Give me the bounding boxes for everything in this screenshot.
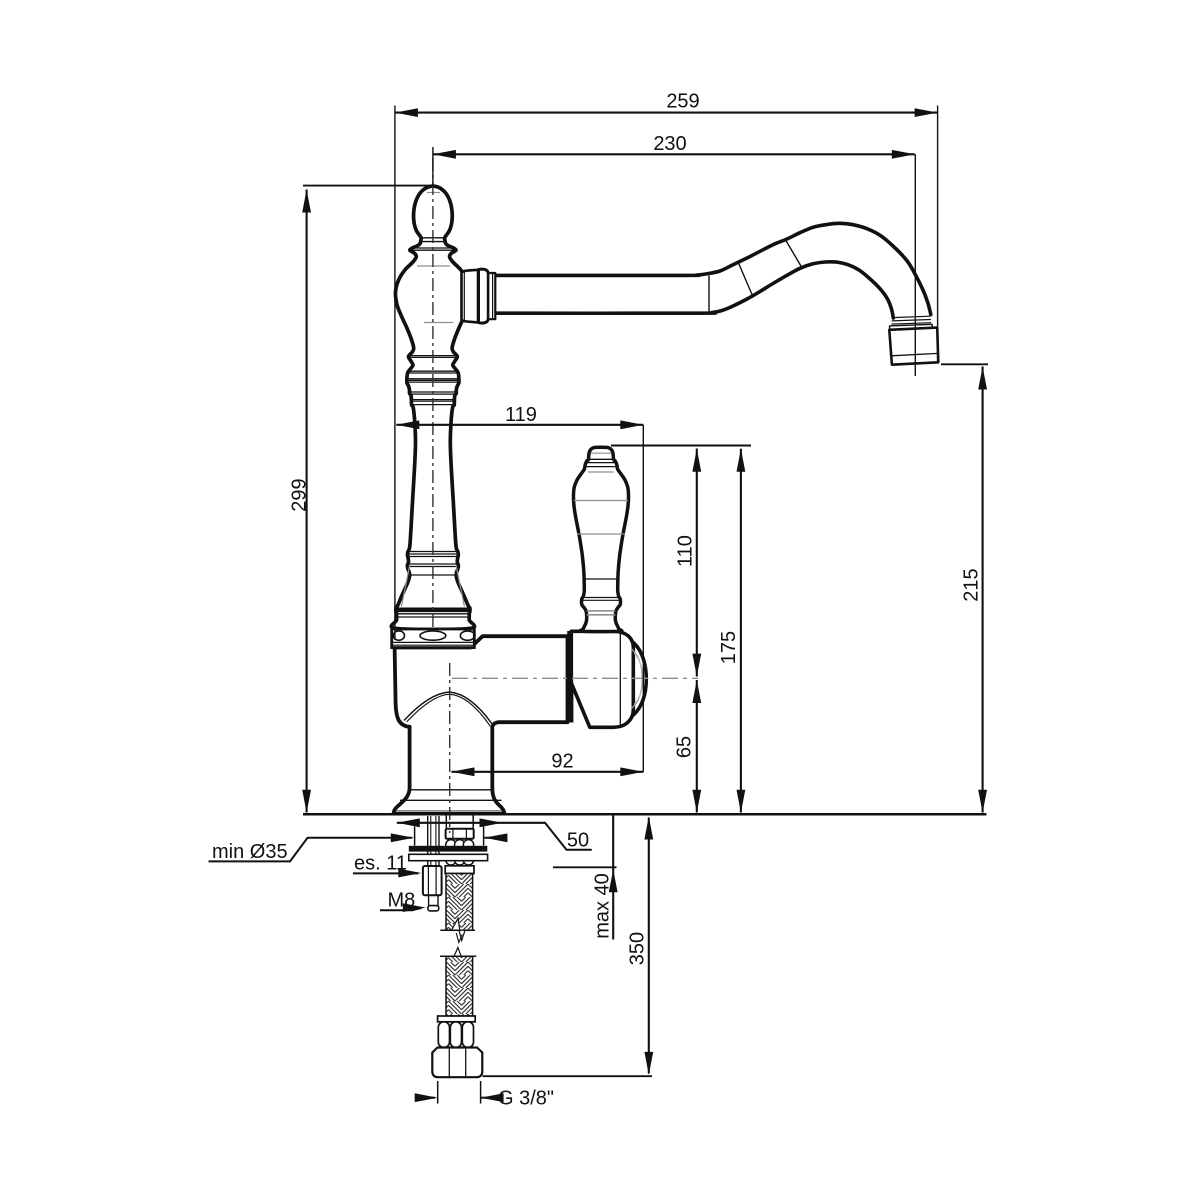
svg-text:215: 215 [961, 568, 983, 601]
svg-text:110: 110 [675, 535, 697, 567]
svg-text:G 3/8": G 3/8" [498, 1088, 554, 1110]
svg-text:259: 259 [666, 91, 699, 113]
svg-text:299: 299 [289, 478, 311, 511]
svg-text:230: 230 [653, 133, 686, 155]
svg-text:175: 175 [718, 631, 740, 664]
svg-text:50: 50 [567, 830, 589, 852]
svg-text:min Ø35: min Ø35 [212, 841, 288, 863]
svg-text:es. 11: es. 11 [354, 853, 407, 875]
svg-text:M8: M8 [388, 890, 416, 912]
svg-text:65: 65 [674, 736, 696, 758]
svg-text:350: 350 [627, 932, 649, 965]
svg-text:119: 119 [505, 404, 537, 426]
svg-text:max 40: max 40 [592, 873, 614, 939]
svg-text:92: 92 [551, 751, 573, 773]
